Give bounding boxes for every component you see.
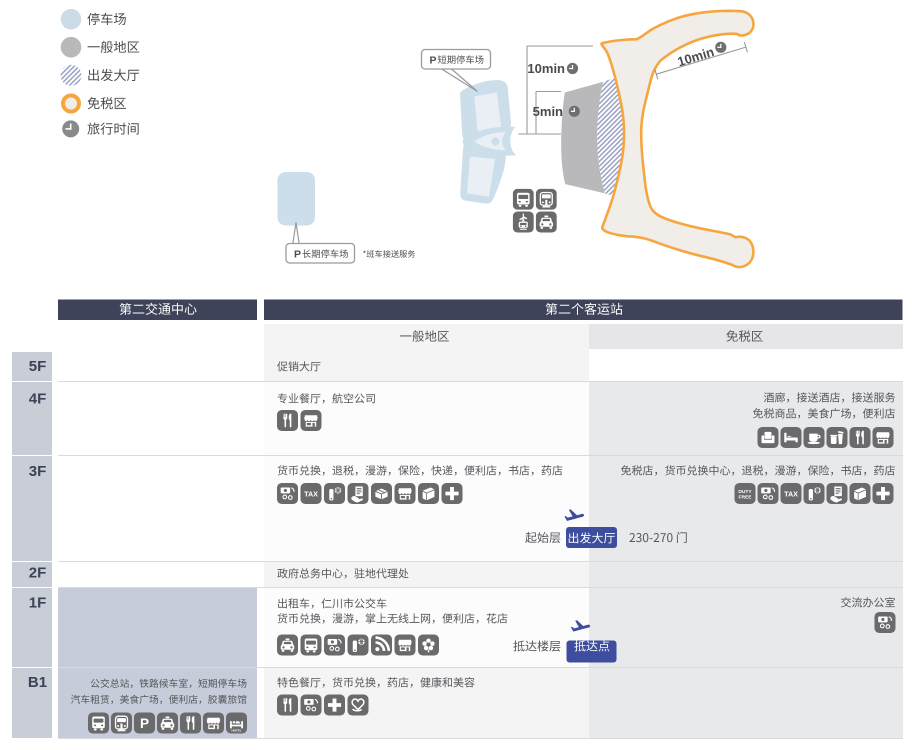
svg-text:P: P <box>430 54 437 66</box>
svg-text:4F: 4F <box>29 391 47 408</box>
svg-text:2F: 2F <box>29 565 47 582</box>
svg-text:B1: B1 <box>28 674 47 691</box>
svg-text:5min: 5min <box>533 104 563 119</box>
svg-text:P: P <box>294 248 301 260</box>
svg-text:5F: 5F <box>29 358 47 375</box>
svg-text:10min: 10min <box>527 61 565 76</box>
svg-text:1F: 1F <box>29 595 47 612</box>
svg-text:3F: 3F <box>29 463 47 480</box>
